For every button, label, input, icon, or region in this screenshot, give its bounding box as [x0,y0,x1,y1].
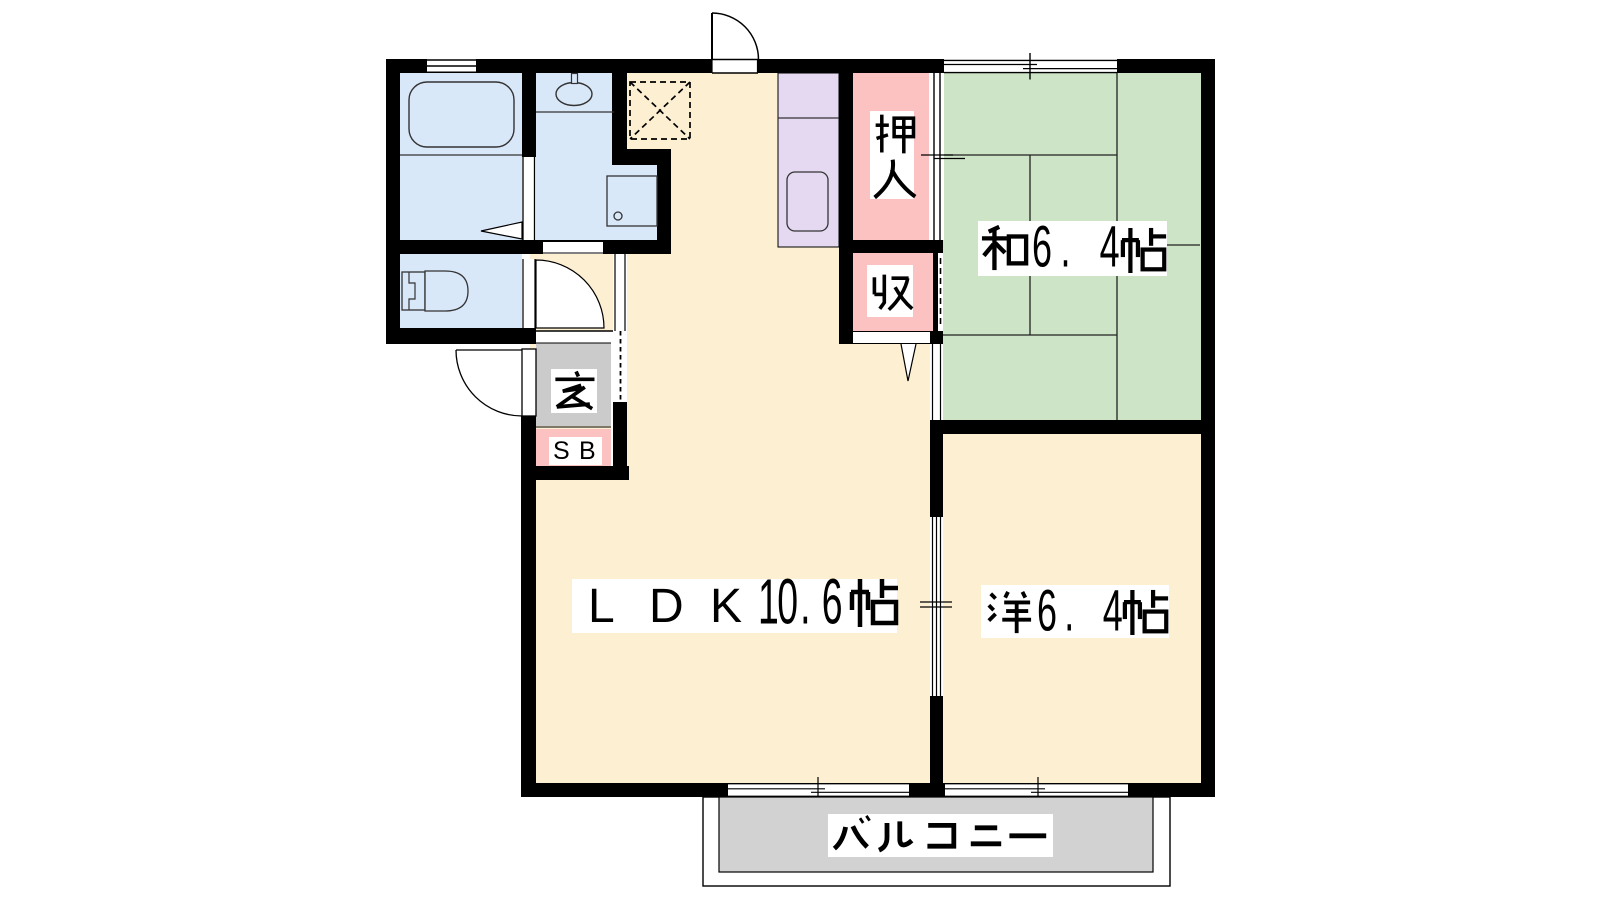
svg-text:10.6: 10.6 [758,567,843,638]
svg-text:LDK: LDK [588,580,742,633]
